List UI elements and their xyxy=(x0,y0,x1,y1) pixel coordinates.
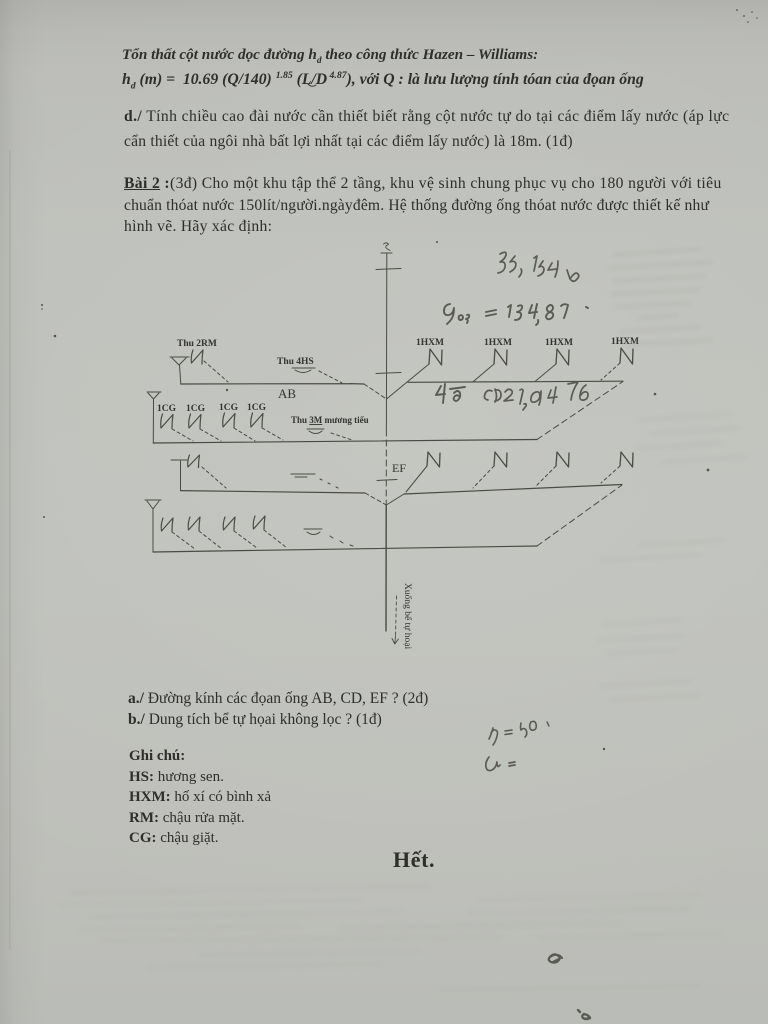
svg-text:Thu 3M mương tiểu: Thu 3M mương tiểu xyxy=(291,415,369,425)
svg-text:1CG: 1CG xyxy=(247,403,267,413)
svg-text:Thu 2RM: Thu 2RM xyxy=(177,339,217,349)
svg-text:1HXM: 1HXM xyxy=(545,338,573,348)
svg-text:AB: AB xyxy=(278,386,296,401)
svg-text:1HXM: 1HXM xyxy=(416,338,444,348)
svg-text:Xuống bể tự hoại: Xuống bể tự hoại xyxy=(402,583,413,649)
svg-text:1CG: 1CG xyxy=(186,404,206,414)
svg-text:1CG: 1CG xyxy=(157,404,177,414)
svg-text:1HXM: 1HXM xyxy=(484,338,512,348)
svg-text:Thu 4HS: Thu 4HS xyxy=(277,357,314,367)
svg-text:1CG: 1CG xyxy=(219,403,239,413)
svg-text:EF: EF xyxy=(392,461,406,475)
